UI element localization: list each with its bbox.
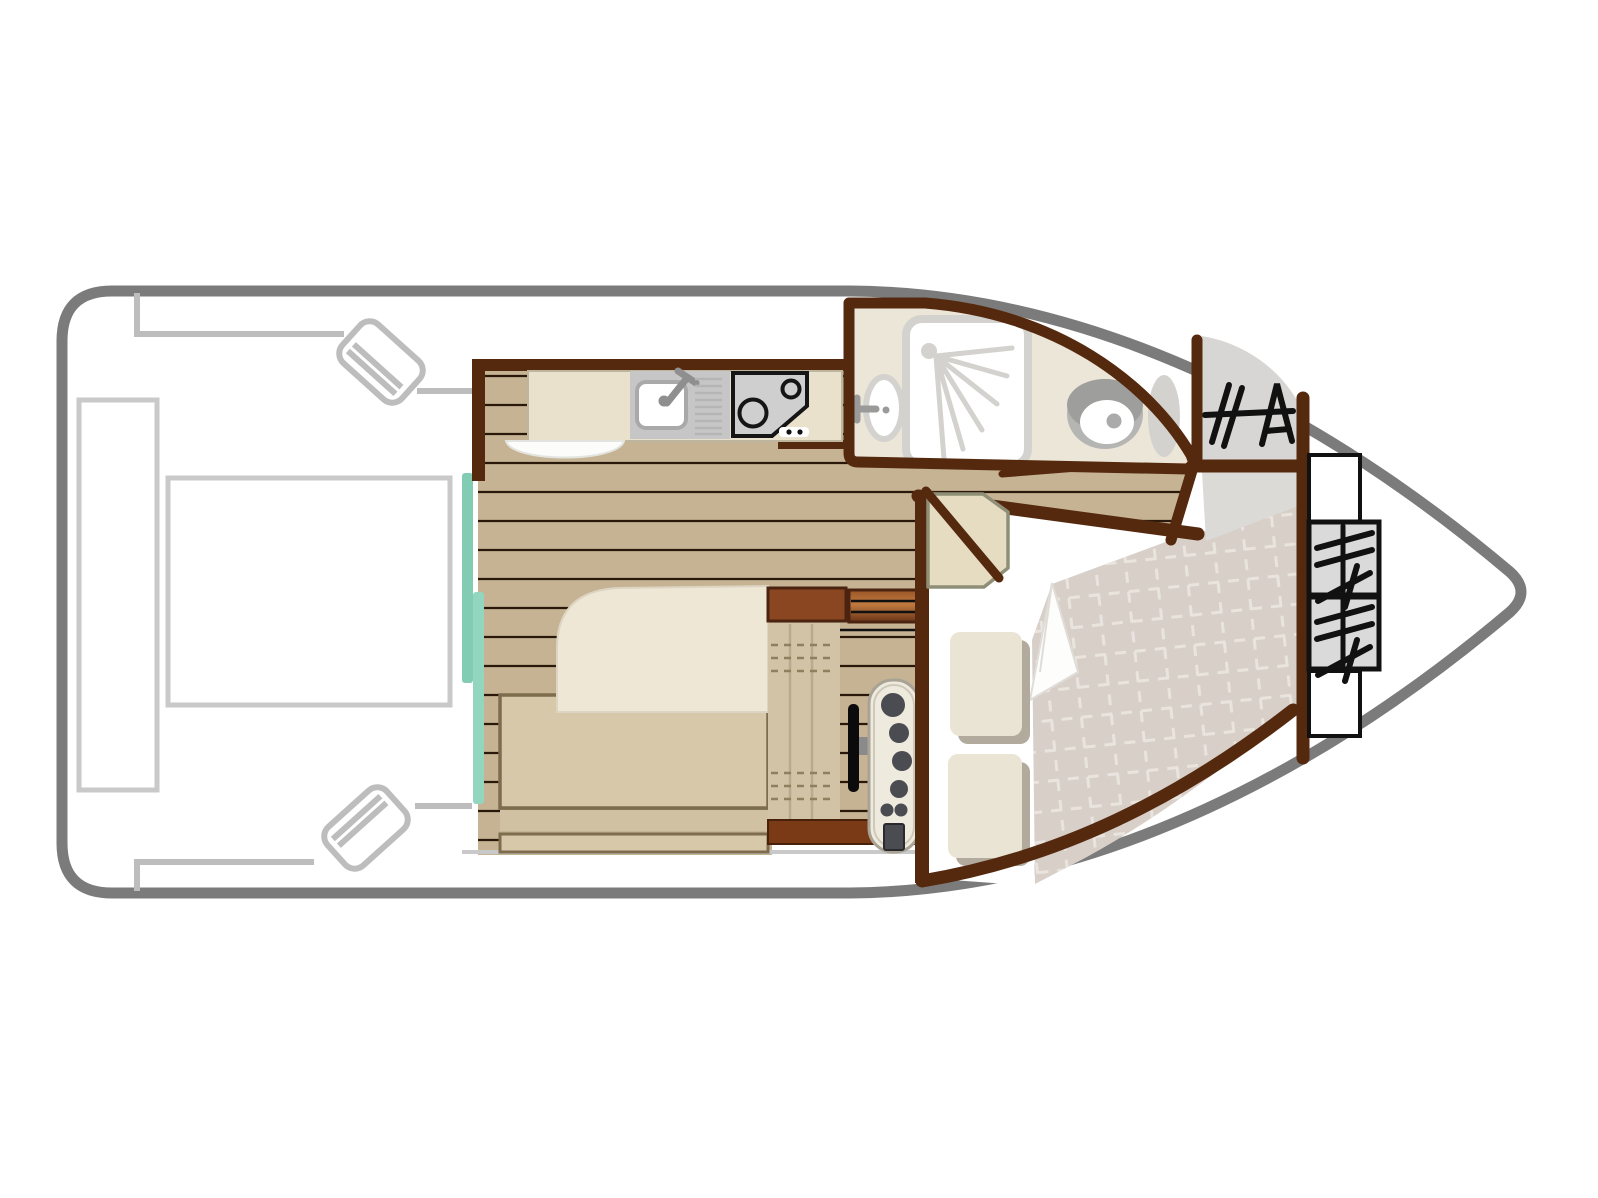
saloon-wall-left [472, 359, 485, 481]
bow-shelf-bottom [1309, 671, 1360, 736]
dinette-table [557, 586, 768, 712]
lower-bench [500, 834, 768, 852]
gauge-icon [892, 751, 912, 771]
deck-bench [79, 400, 157, 790]
stove-control-strip [779, 427, 809, 437]
kitchen-wall-top [472, 359, 854, 371]
helm-seat [768, 623, 840, 821]
gauge-icon [889, 723, 909, 743]
pillow-1 [950, 632, 1022, 736]
basin-drain [883, 407, 890, 414]
gauge-icon [881, 693, 905, 717]
window-strip-2 [473, 592, 484, 804]
gauge-icon [890, 780, 908, 798]
storage-cabinet [768, 588, 846, 621]
sink-drain [659, 396, 670, 407]
stove-knob [797, 429, 802, 434]
floorplan-svg [0, 0, 1598, 1198]
pillow-2 [948, 754, 1022, 858]
steering-wheel [848, 704, 859, 792]
bench-light-strip [500, 810, 768, 831]
deck-table [168, 478, 450, 705]
wardrobe [1202, 336, 1299, 461]
shower-head-icon [921, 343, 937, 359]
gauge-icon [895, 804, 908, 817]
stove [733, 373, 809, 437]
window-strip-1 [462, 473, 473, 683]
stove-knob [786, 429, 791, 434]
shower-tray [906, 319, 1028, 465]
bow-shelf-top [1309, 455, 1360, 522]
boat-floorplan [0, 0, 1598, 1198]
toilet-drain [1107, 414, 1122, 429]
gauge-display [884, 824, 904, 850]
gauge-icon [881, 804, 894, 817]
